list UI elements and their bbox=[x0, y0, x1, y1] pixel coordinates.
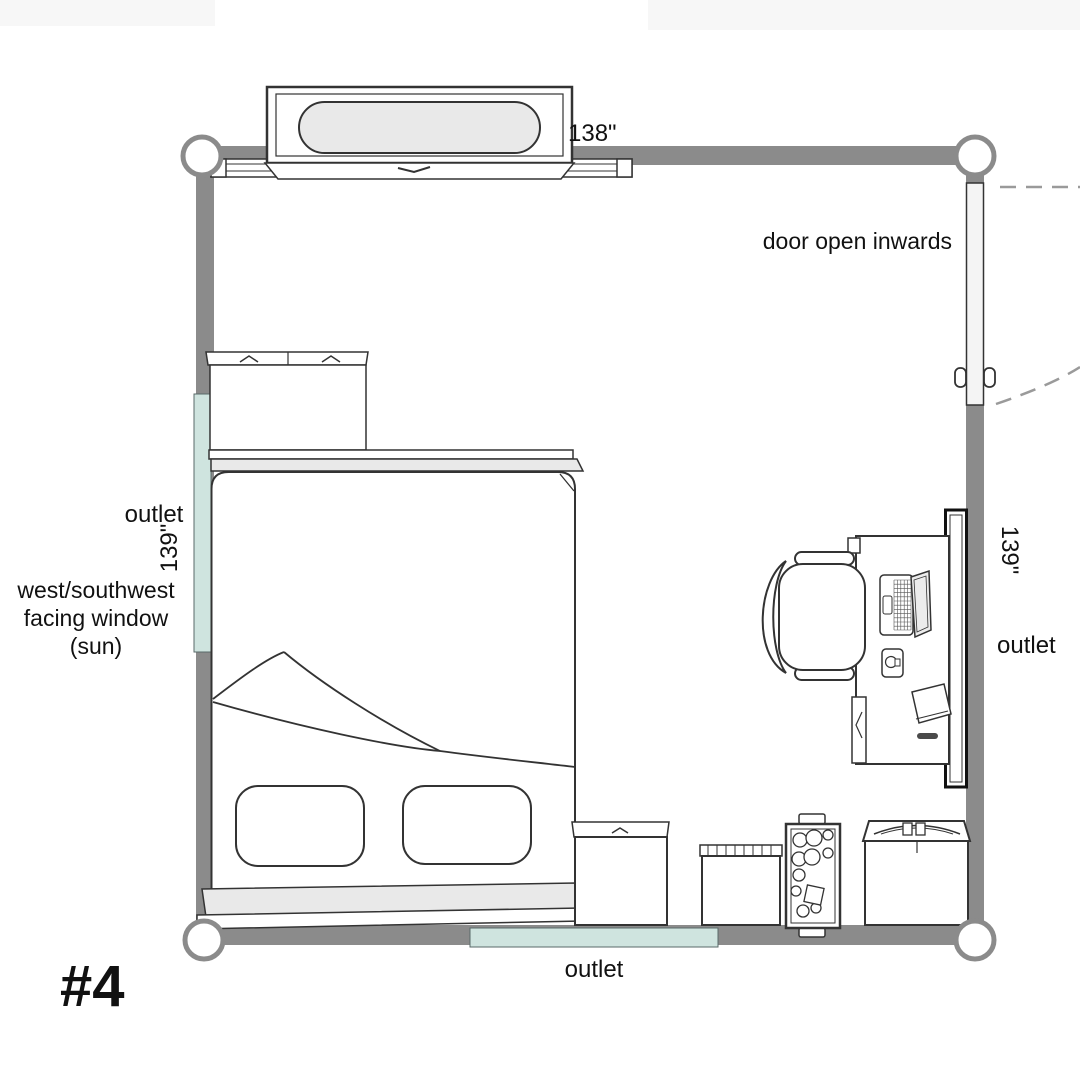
mini-fridge bbox=[863, 821, 970, 925]
storage-cabinet bbox=[572, 822, 669, 925]
wall-shelf bbox=[265, 87, 574, 179]
window-note-line3: (sun) bbox=[70, 633, 122, 659]
hinge-icon bbox=[903, 823, 912, 835]
outlet-strip-bottom bbox=[470, 928, 718, 947]
corner-post bbox=[956, 921, 994, 959]
corner-post bbox=[956, 137, 994, 175]
window-note-line2: facing window bbox=[24, 605, 169, 631]
trackpad bbox=[883, 596, 892, 614]
window-note-line1: west/southwest bbox=[16, 577, 175, 603]
door-knob bbox=[955, 368, 966, 387]
floor-plan-canvas: door open inwards 138" outlet 139" west/… bbox=[0, 0, 1080, 1080]
plan-number: #4 bbox=[60, 954, 125, 1019]
photo-artifact-left bbox=[0, 0, 215, 26]
corner-post bbox=[183, 137, 221, 175]
rolling-cart bbox=[786, 814, 840, 937]
dimension-right-label: 139" bbox=[996, 526, 1023, 575]
door-knob bbox=[984, 368, 995, 387]
desk-clamp bbox=[848, 538, 860, 553]
corner-post bbox=[185, 921, 223, 959]
door-swing-arc bbox=[996, 187, 1080, 404]
door bbox=[955, 183, 1080, 405]
floor-plan-svg: door open inwards 138" outlet 139" west/… bbox=[0, 0, 1080, 1080]
laptop bbox=[880, 571, 931, 637]
shelf-oval bbox=[299, 102, 540, 153]
outlet-right-label: outlet bbox=[997, 632, 1056, 659]
door-note-label: door open inwards bbox=[763, 228, 952, 254]
photo-artifact-right bbox=[648, 0, 1080, 30]
hinge-icon bbox=[916, 823, 925, 835]
dresser bbox=[206, 352, 368, 450]
office-chair bbox=[763, 552, 865, 680]
pillow-left bbox=[236, 786, 364, 866]
dimension-top-label: 138" bbox=[568, 120, 617, 147]
bed-footboard-rail bbox=[209, 450, 573, 459]
side-bin bbox=[852, 697, 866, 763]
chair-seat bbox=[779, 564, 865, 670]
door-leaf bbox=[967, 183, 984, 405]
cart-handle bbox=[799, 814, 825, 824]
laundry-hamper bbox=[700, 845, 782, 925]
bed-footboard bbox=[211, 459, 583, 471]
window-left bbox=[194, 394, 211, 652]
outlet-bottom-label: outlet bbox=[565, 956, 624, 983]
pillow-right bbox=[403, 786, 531, 864]
dimension-left-label: 139" bbox=[156, 524, 183, 573]
mug bbox=[882, 649, 903, 677]
phone bbox=[917, 733, 938, 739]
cart-handle bbox=[799, 928, 825, 937]
bed bbox=[197, 450, 583, 929]
